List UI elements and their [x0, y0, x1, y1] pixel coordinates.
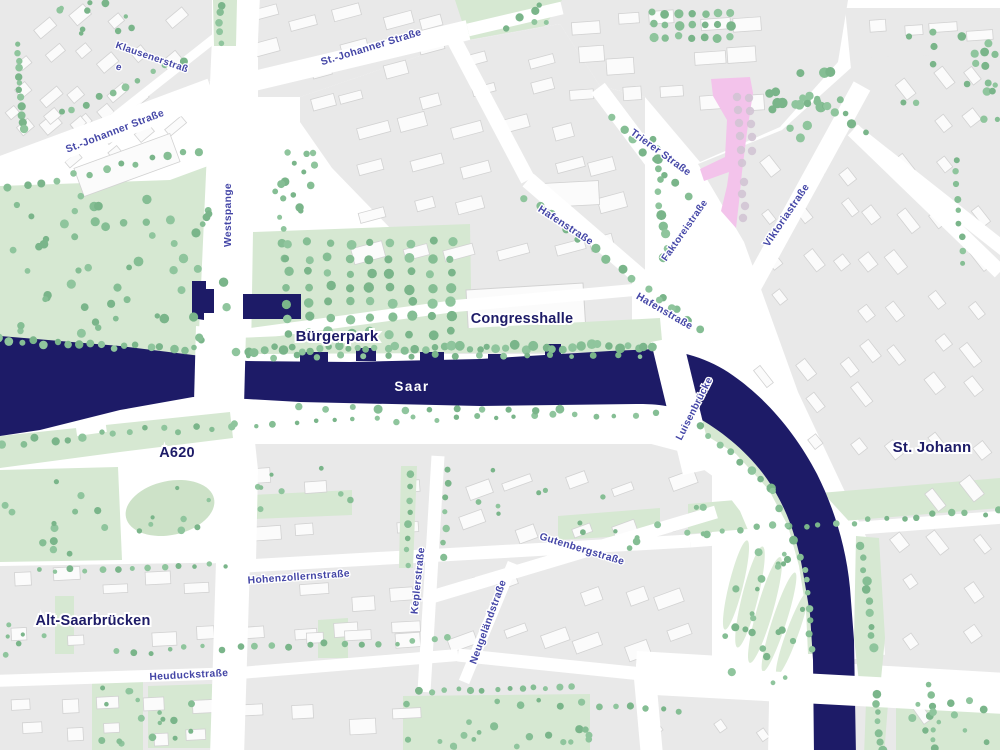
map-canvas[interactable]: KlausenerstraßeSt.-Johanner StraßeSt.-Jo… — [0, 0, 1000, 750]
district-label-buergerpark: Bürgerpark — [296, 328, 379, 345]
district-label-st-johann: St. Johann — [893, 439, 972, 456]
district-label-a620: A620 — [159, 445, 194, 461]
district-label-congresshalle: Congresshalle — [471, 311, 574, 327]
map-viewport: KlausenerstraßeSt.-Johanner StraßeSt.-Jo… — [0, 0, 1000, 750]
street-label-westspange: Westspange — [223, 183, 234, 247]
harbor-basin — [243, 294, 301, 319]
district-label-alt-saarbruecken: Alt-Saarbrücken — [35, 613, 150, 629]
water-label-saar: Saar — [394, 379, 429, 394]
